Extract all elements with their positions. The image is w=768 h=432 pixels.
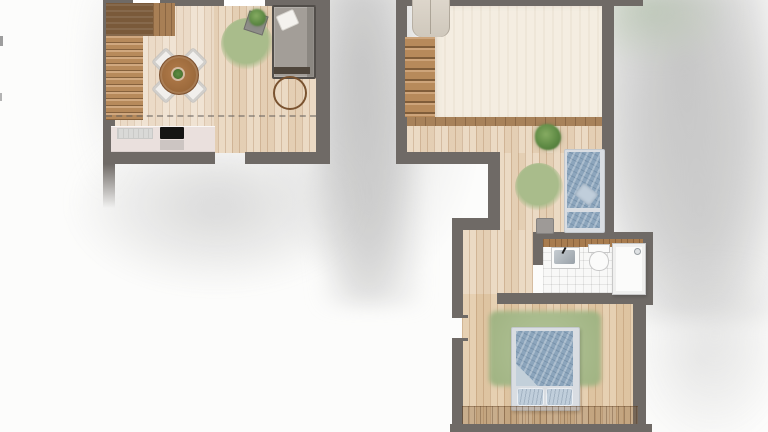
wash-below-left-plan bbox=[75, 148, 360, 283]
door-frame-tick bbox=[452, 338, 468, 341]
sofa-foot-frame bbox=[274, 67, 310, 74]
wardrobe-band bbox=[462, 406, 638, 424]
wall-bottom-left-segment bbox=[103, 152, 215, 164]
shower-drain-icon bbox=[634, 248, 641, 255]
wall-bottom-right-segment bbox=[245, 152, 330, 164]
door-frame-tick bbox=[452, 315, 468, 318]
bed-pillow bbox=[517, 388, 544, 406]
staircase-upper bbox=[405, 37, 435, 117]
wash-bottom-right bbox=[642, 265, 768, 432]
toilet-bowl bbox=[589, 251, 609, 271]
potted-plant-icon bbox=[249, 9, 266, 26]
stair-side-cabinet bbox=[153, 3, 175, 36]
cooktop bbox=[160, 127, 184, 139]
stool bbox=[536, 218, 554, 234]
wash-green-top-right bbox=[600, 0, 730, 65]
wall-right bbox=[316, 0, 330, 164]
oven-front bbox=[160, 140, 184, 150]
wall-jog-horizontal bbox=[452, 218, 500, 230]
table-centerpiece-plant bbox=[173, 69, 183, 79]
corridor-floor-narrow bbox=[463, 230, 533, 294]
wall-bedroom-bottom bbox=[450, 424, 652, 432]
open-room-floor bbox=[435, 4, 603, 118]
stair-upper-flight bbox=[412, 0, 450, 37]
wall-stair-bottom bbox=[396, 152, 500, 164]
side-table bbox=[273, 76, 307, 110]
staircase-lower bbox=[106, 36, 143, 120]
paint-speck bbox=[0, 36, 3, 46]
wall-left-stub bbox=[103, 164, 115, 208]
hall-plant-icon bbox=[535, 124, 561, 150]
wood-threshold bbox=[405, 117, 603, 126]
stair-upper-flight-divider bbox=[430, 0, 431, 34]
duvet-fold bbox=[516, 364, 538, 386]
window-opening bbox=[224, 0, 265, 6]
wall-bath-left bbox=[533, 232, 543, 265]
washbasin-bowl bbox=[554, 250, 575, 264]
section-line bbox=[106, 115, 316, 117]
stair-landing bbox=[106, 3, 153, 36]
bed-pillow bbox=[546, 388, 573, 406]
single-bed-foot-blanket bbox=[567, 212, 600, 228]
hall-rug bbox=[515, 163, 563, 211]
paint-speck bbox=[0, 93, 2, 101]
floor-plan-canvas bbox=[0, 0, 768, 432]
kitchen-sink bbox=[117, 128, 153, 139]
wall-corridor-left bbox=[452, 230, 463, 317]
